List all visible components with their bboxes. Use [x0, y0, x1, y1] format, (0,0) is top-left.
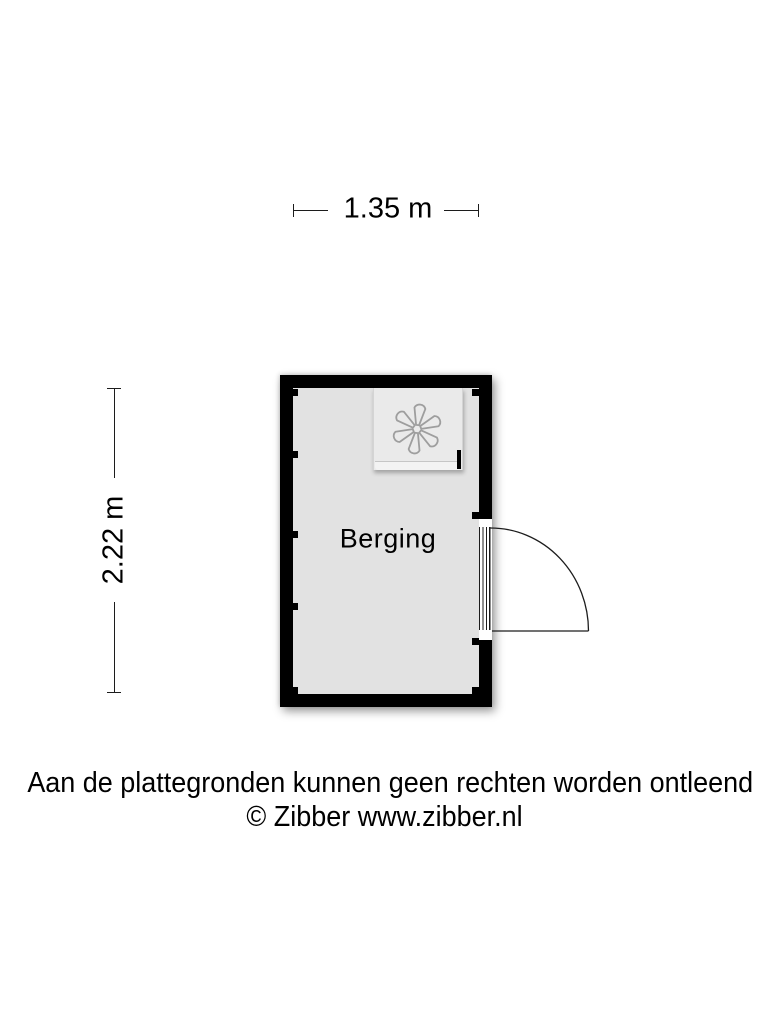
floorplan-canvas: 1.35 m 2.22 m Berging — [0, 0, 768, 1024]
footer: Aan de plattegronden kunnen geen rechten… — [0, 766, 768, 834]
wall-anchor — [472, 389, 479, 396]
dimension-line-width-right — [444, 210, 479, 211]
dimension-line-height-bottom — [114, 602, 115, 693]
disclaimer-text: Aan de plattegronden kunnen geen rechten… — [0, 766, 768, 800]
dimension-tick-right — [478, 204, 479, 217]
washing-machine-connection-mark — [457, 450, 461, 469]
wall-anchor — [291, 687, 298, 694]
wall-anchor — [291, 389, 298, 396]
wall-anchor — [472, 687, 479, 694]
height-dimension-label: 2.22 m — [98, 496, 131, 585]
fan-icon — [373, 388, 461, 470]
wall-anchor — [291, 603, 298, 610]
copyright-text: © Zibber www.zibber.nl — [0, 800, 768, 834]
dimension-tick-bottom — [107, 692, 121, 693]
wall-anchor — [291, 451, 298, 458]
wall-anchor — [291, 531, 298, 538]
width-dimension-label: 1.35 m — [344, 193, 433, 226]
dimension-line-width-left — [293, 210, 328, 211]
room-label: Berging — [340, 524, 437, 555]
door-swing-arc — [470, 500, 610, 650]
dimension-line-height-top — [114, 388, 115, 478]
